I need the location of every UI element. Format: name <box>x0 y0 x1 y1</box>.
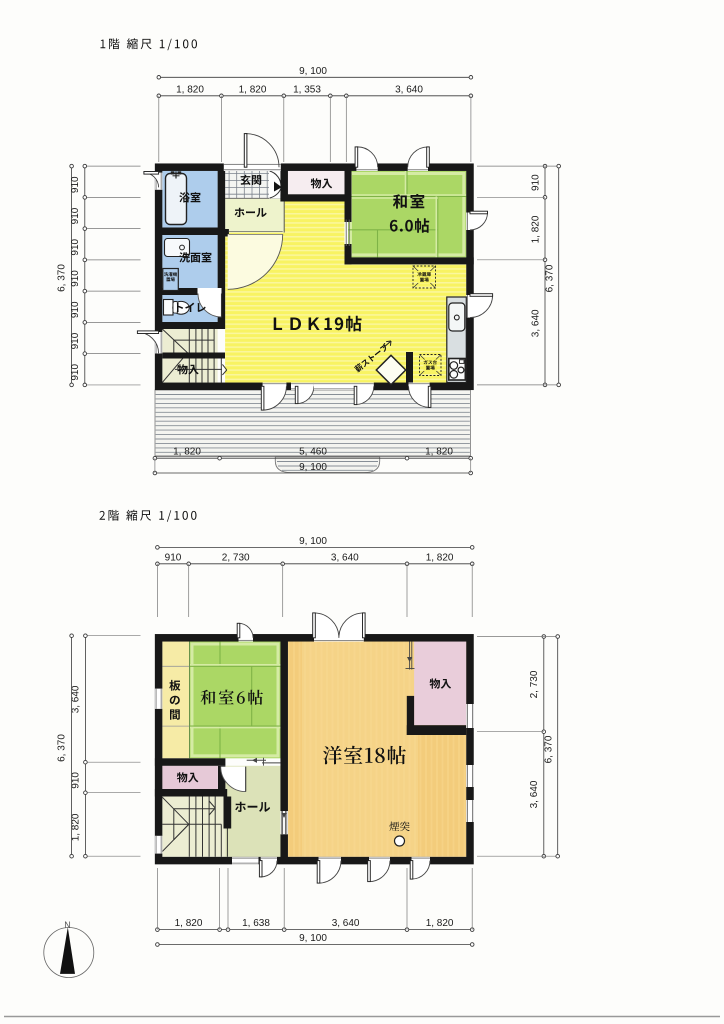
svg-text:5, 460: 5, 460 <box>299 447 327 458</box>
svg-text:9, 100: 9, 100 <box>299 933 327 944</box>
svg-text:3, 640: 3, 640 <box>331 553 359 564</box>
svg-text:2, 730: 2, 730 <box>222 553 250 564</box>
svg-text:910: 910 <box>165 553 182 564</box>
svg-text:6, 370: 6, 370 <box>544 735 555 763</box>
svg-text:910: 910 <box>71 772 82 789</box>
svg-text:9, 100: 9, 100 <box>299 66 327 77</box>
svg-text:910: 910 <box>70 332 81 349</box>
svg-text:910: 910 <box>70 301 81 318</box>
svg-text:1, 820: 1, 820 <box>425 447 453 458</box>
svg-text:1, 638: 1, 638 <box>242 918 270 929</box>
svg-text:3, 640: 3, 640 <box>71 685 82 713</box>
svg-text:1, 820: 1, 820 <box>173 447 201 458</box>
svg-text:1, 820: 1, 820 <box>176 85 204 96</box>
svg-text:910: 910 <box>70 176 81 193</box>
svg-text:3, 640: 3, 640 <box>529 780 540 808</box>
svg-text:6, 370: 6, 370 <box>545 264 556 292</box>
svg-text:N: N <box>64 920 71 930</box>
svg-text:1, 820: 1, 820 <box>71 813 82 841</box>
svg-text:1, 820: 1, 820 <box>175 918 203 929</box>
svg-text:910: 910 <box>70 238 81 255</box>
svg-text:1, 820: 1, 820 <box>239 85 267 96</box>
svg-text:3, 640: 3, 640 <box>531 309 542 337</box>
svg-text:910: 910 <box>531 174 542 191</box>
svg-text:910: 910 <box>70 364 81 381</box>
svg-text:1, 820: 1, 820 <box>426 553 454 564</box>
svg-text:3, 640: 3, 640 <box>395 85 423 96</box>
svg-text:6, 370: 6, 370 <box>57 264 68 292</box>
svg-text:1, 353: 1, 353 <box>293 85 321 96</box>
svg-text:910: 910 <box>70 207 81 224</box>
svg-text:1, 820: 1, 820 <box>426 918 454 929</box>
svg-text:9, 100: 9, 100 <box>299 462 327 473</box>
svg-text:3, 640: 3, 640 <box>332 918 360 929</box>
svg-text:1, 820: 1, 820 <box>531 215 542 243</box>
svg-text:6, 370: 6, 370 <box>57 734 68 762</box>
svg-text:9, 100: 9, 100 <box>299 536 327 547</box>
svg-text:910: 910 <box>70 270 81 287</box>
svg-text:2, 730: 2, 730 <box>529 670 540 698</box>
